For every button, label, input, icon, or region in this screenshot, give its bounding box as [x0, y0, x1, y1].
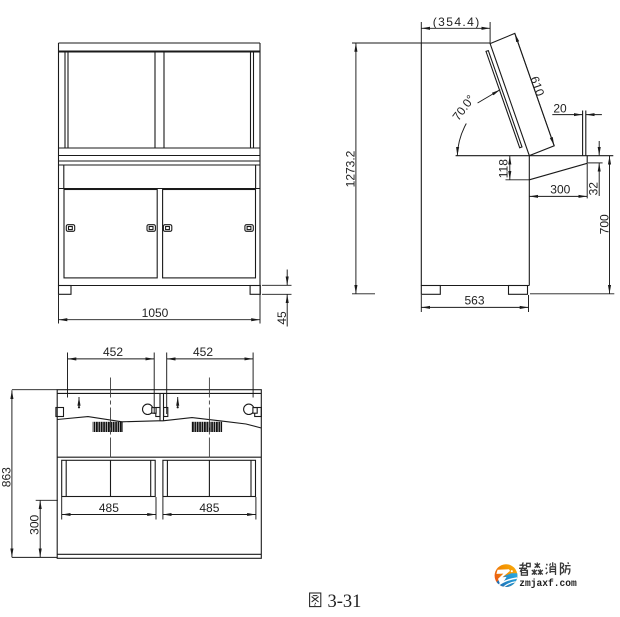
svg-text:45: 45	[275, 311, 289, 325]
svg-text:485: 485	[199, 501, 219, 515]
svg-text:485: 485	[99, 501, 119, 515]
svg-text:300: 300	[28, 514, 42, 534]
svg-text:452: 452	[103, 345, 123, 359]
svg-text:(354.4): (354.4)	[433, 15, 480, 29]
svg-text:863: 863	[0, 467, 14, 487]
svg-text:118: 118	[496, 159, 510, 178]
svg-text:1050: 1050	[142, 306, 169, 320]
svg-text:20: 20	[553, 101, 567, 115]
svg-text:1273.2: 1273.2	[343, 150, 357, 187]
svg-text:300: 300	[550, 183, 570, 197]
svg-text:32: 32	[587, 182, 601, 196]
svg-text:zmjaxf.com: zmjaxf.com	[519, 578, 577, 590]
svg-text:3-31: 3-31	[328, 592, 362, 612]
svg-text:452: 452	[193, 345, 213, 359]
svg-text:700: 700	[598, 214, 612, 234]
svg-text:563: 563	[464, 294, 484, 308]
